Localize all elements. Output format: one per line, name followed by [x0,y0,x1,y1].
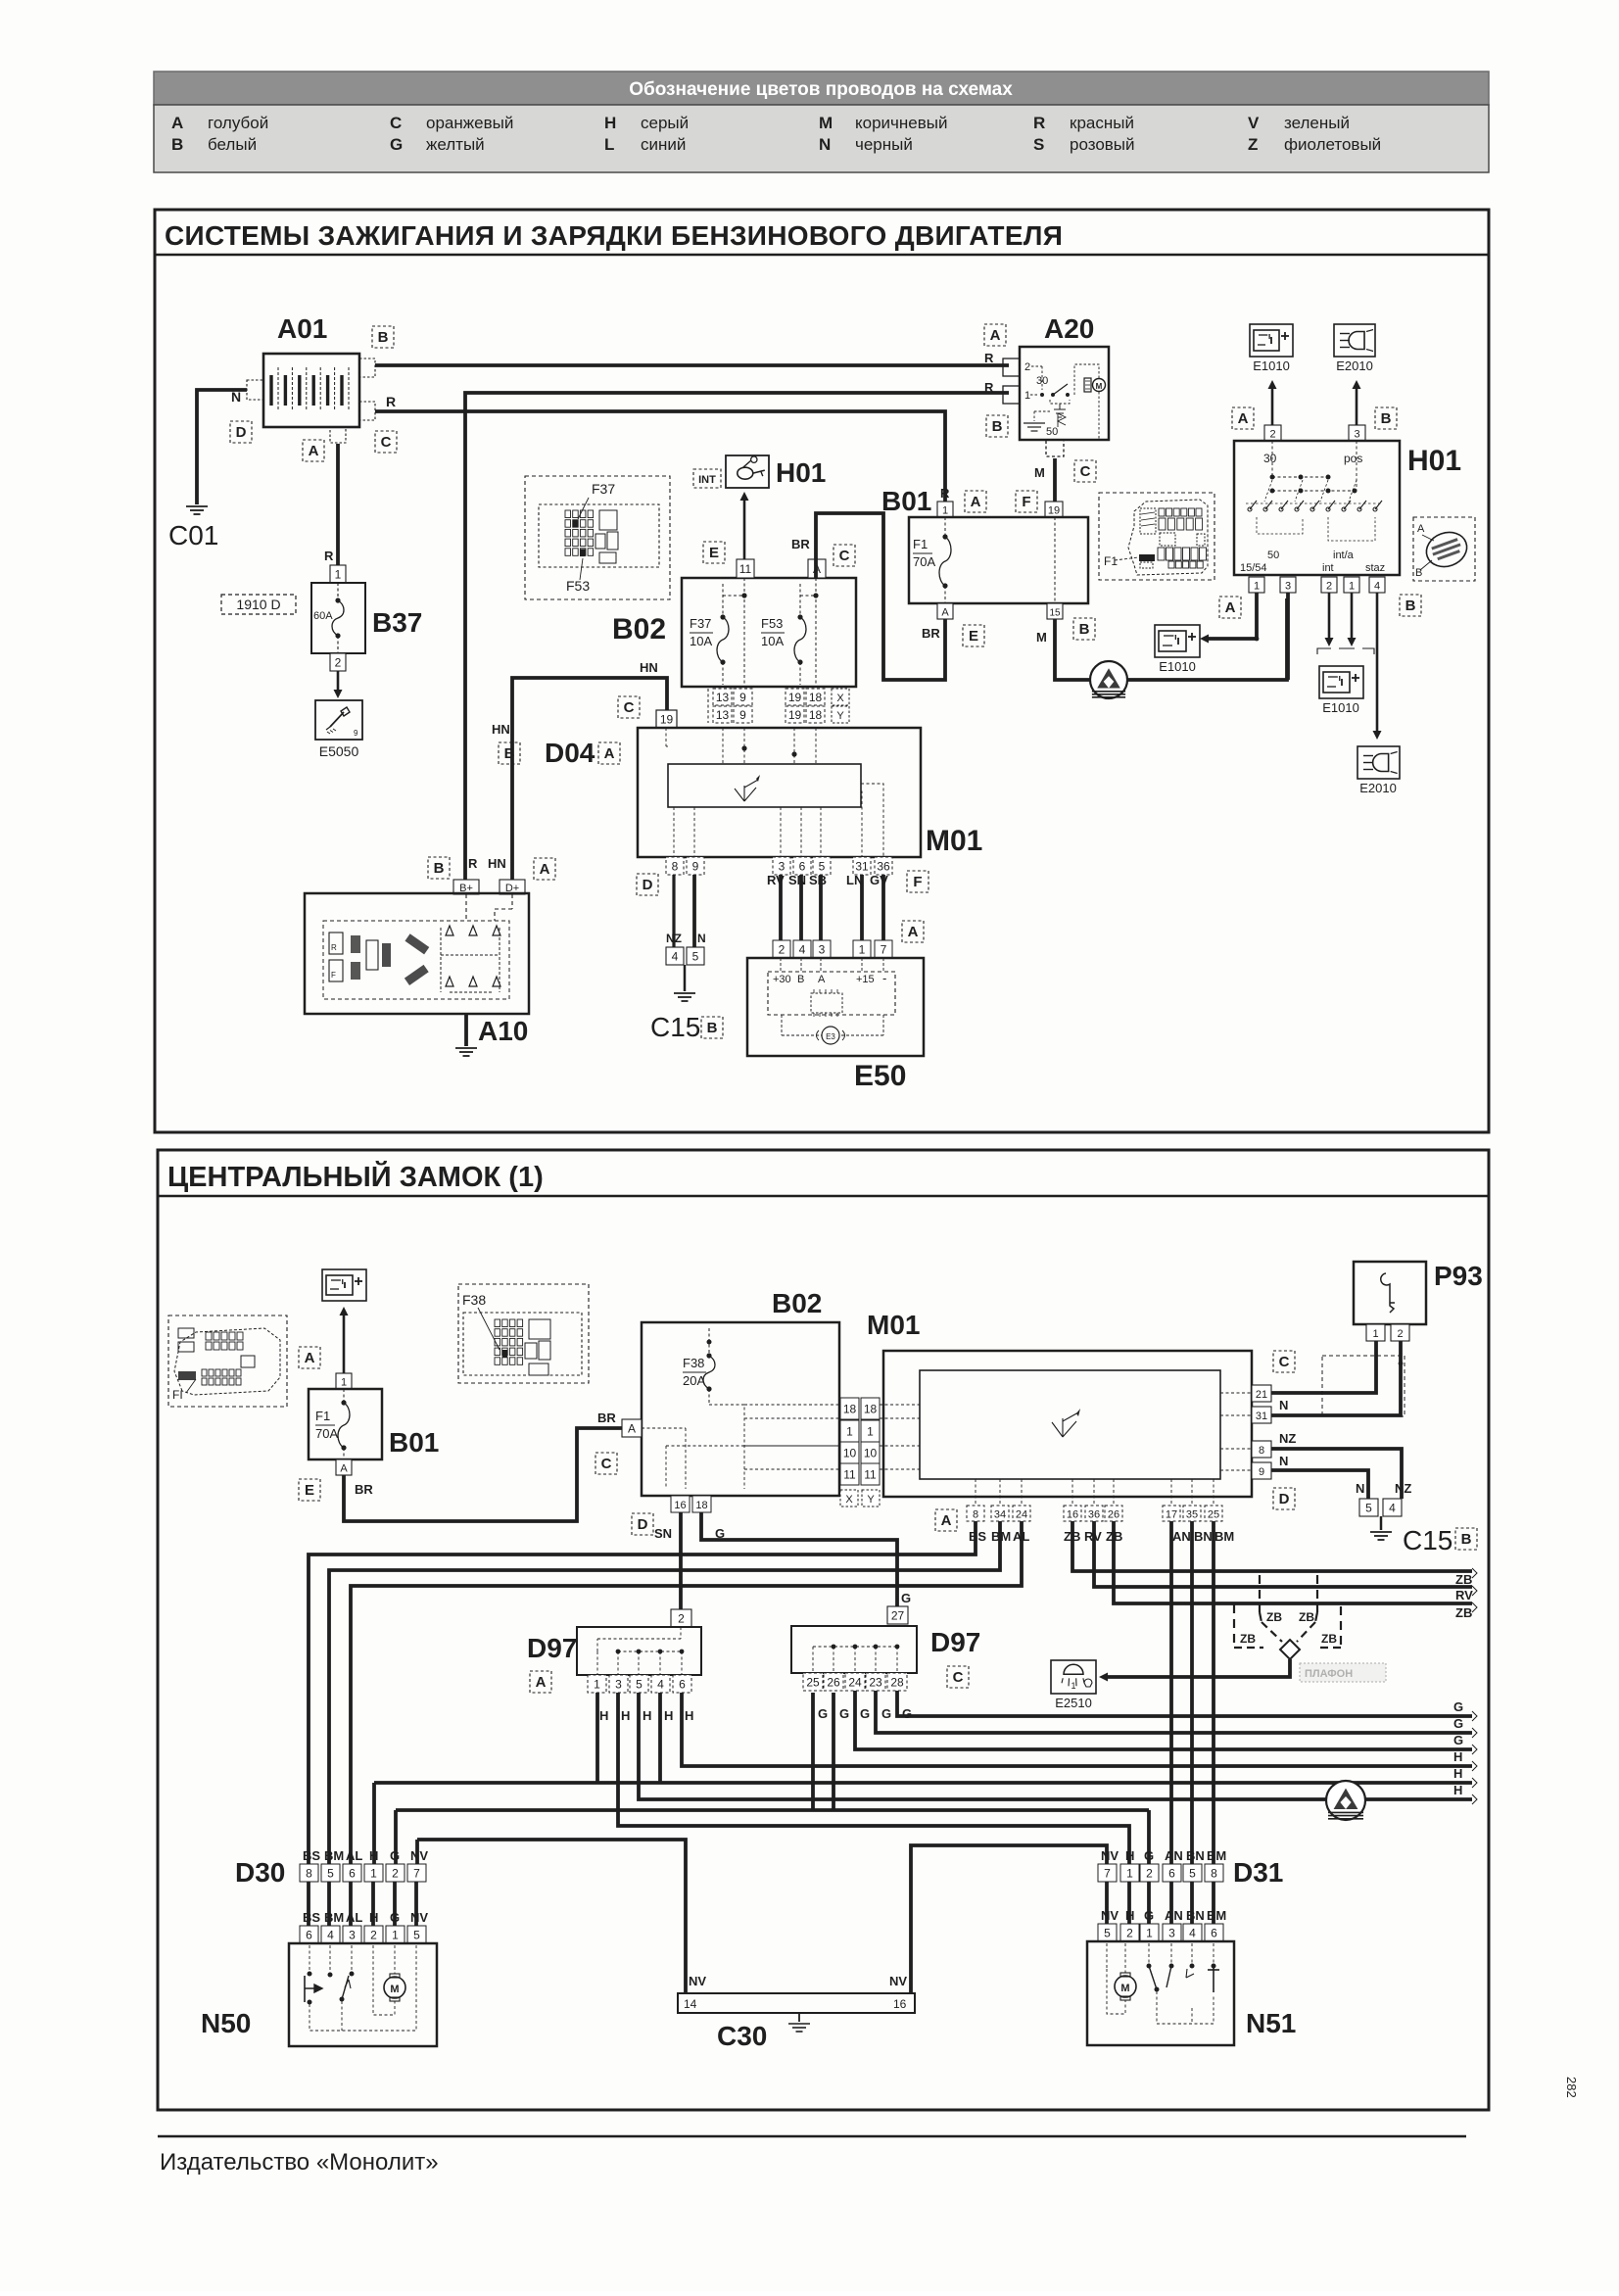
svg-text:C30: C30 [717,2021,767,2051]
svg-text:2: 2 [1269,429,1275,441]
svg-text:G: G [901,1591,911,1605]
svg-text:фиолетовый: фиолетовый [1284,135,1381,154]
svg-text:E5050: E5050 [319,743,359,759]
svg-text:1: 1 [1024,390,1030,402]
svg-text:5: 5 [636,1678,643,1692]
svg-text:4: 4 [1189,1927,1196,1940]
svg-text:BS: BS [303,1848,320,1863]
svg-text:F1: F1 [315,1409,330,1423]
svg-text:2: 2 [1326,581,1332,593]
svg-text:D: D [638,1516,648,1533]
svg-text:D: D [236,424,247,441]
svg-text:23: 23 [869,1676,882,1690]
svg-text:SB: SB [809,873,827,887]
svg-text:M01: M01 [926,825,982,857]
svg-text:B02: B02 [772,1288,822,1318]
svg-text:AN: AN [1172,1529,1191,1544]
svg-text:BR: BR [922,626,940,641]
svg-text:N50: N50 [201,2008,251,2038]
svg-text:BM: BM [1207,1908,1226,1923]
svg-text:BR: BR [355,1482,373,1497]
svg-text:5: 5 [819,860,826,874]
svg-text:8: 8 [1259,1445,1264,1457]
svg-text:G: G [390,1848,400,1863]
svg-text:B: B [504,745,515,762]
svg-text:черный: черный [855,135,913,154]
svg-text:AN: AN [1165,1908,1183,1923]
svg-text:HN: HN [488,856,506,871]
svg-text:B: B [1079,621,1090,638]
svg-text:2: 2 [392,1867,399,1881]
svg-text:18: 18 [695,1500,707,1511]
svg-text:R: R [324,549,334,563]
svg-text:A: A [171,114,183,132]
svg-text:9: 9 [1259,1466,1264,1478]
svg-text:3: 3 [1168,1927,1175,1940]
svg-text:NZ: NZ [1395,1481,1411,1496]
svg-text:4: 4 [1374,581,1380,593]
svg-text:18: 18 [864,1403,878,1416]
svg-text:20A: 20A [683,1373,705,1388]
svg-text:19: 19 [1048,505,1060,517]
svg-text:D97: D97 [930,1627,980,1657]
svg-text:G: G [1453,1699,1463,1714]
svg-text:A: A [1238,410,1249,427]
svg-text:C: C [1080,463,1091,480]
svg-text:M01: M01 [867,1310,920,1340]
svg-text:H: H [1453,1783,1462,1797]
svg-text:D04: D04 [545,738,595,768]
svg-text:C15: C15 [1403,1525,1452,1555]
svg-text:A: A [990,327,1001,344]
svg-text:1: 1 [341,1377,347,1389]
svg-text:SN: SN [654,1526,672,1541]
svg-text:ZB: ZB [1455,1572,1472,1587]
svg-text:NV: NV [410,1910,428,1925]
svg-text:BS: BS [303,1910,320,1925]
svg-text:BN: BN [1194,1529,1213,1544]
svg-text:N: N [1356,1481,1364,1496]
svg-text:1: 1 [594,1678,600,1692]
svg-text:1: 1 [392,1929,399,1942]
svg-text:4: 4 [327,1929,334,1942]
svg-text:-: - [882,971,886,985]
svg-text:R: R [1033,114,1045,132]
svg-text:C: C [953,1669,964,1686]
svg-text:F1: F1 [1104,554,1118,568]
svg-text:S: S [1033,135,1044,154]
svg-text:10A: 10A [690,634,712,648]
svg-text:10A: 10A [761,634,784,648]
svg-text:H: H [369,1910,378,1925]
svg-text:28: 28 [890,1676,904,1690]
svg-text:F38: F38 [683,1356,704,1370]
svg-text:A: A [818,974,826,985]
svg-text:ЦЕНТРАЛЬНЫЙ ЗАМОК (1): ЦЕНТРАЛЬНЫЙ ЗАМОК (1) [167,1160,544,1193]
svg-text:N: N [1279,1398,1288,1412]
svg-text:3: 3 [1285,581,1291,593]
svg-text:F53: F53 [761,616,783,631]
svg-text:C: C [624,699,635,716]
svg-text:NZ: NZ [666,932,682,945]
svg-text:INT: INT [698,474,716,486]
svg-text:G: G [881,1706,891,1721]
svg-text:4: 4 [672,950,679,964]
svg-text:6: 6 [349,1867,356,1881]
svg-text:G: G [1453,1733,1463,1747]
svg-text:E2510: E2510 [1055,1696,1092,1710]
svg-text:H: H [1453,1766,1462,1781]
svg-text:G: G [1144,1848,1154,1863]
svg-text:50: 50 [1046,426,1058,438]
svg-text:белый: белый [208,135,257,154]
svg-text:B37: B37 [372,607,422,638]
svg-text:15: 15 [1049,608,1061,619]
svg-text:серый: серый [641,114,689,132]
svg-text:5: 5 [1189,1867,1196,1881]
svg-text:ПЛАФОН: ПЛАФОН [1305,1668,1353,1680]
svg-text:2: 2 [1146,1867,1153,1881]
svg-text:13: 13 [716,708,730,722]
svg-text:HN: HN [492,722,510,737]
svg-text:10: 10 [864,1447,878,1460]
svg-text:N: N [819,135,831,154]
svg-text:ZB: ZB [1321,1632,1337,1646]
svg-text:H: H [685,1708,693,1723]
svg-text:30: 30 [1263,452,1277,465]
svg-text:M: M [1034,465,1045,480]
svg-text:16: 16 [893,1997,907,2011]
svg-text:27: 27 [891,1609,905,1623]
svg-text:R: R [386,394,396,409]
svg-text:E3: E3 [826,1032,835,1041]
svg-text:3: 3 [1354,429,1359,441]
svg-text:A01: A01 [277,313,327,344]
svg-text:BM: BM [324,1910,344,1925]
svg-text:25: 25 [1208,1509,1219,1521]
svg-text:2: 2 [1397,1328,1403,1340]
svg-text:6: 6 [679,1678,686,1692]
svg-text:B: B [992,418,1003,435]
svg-text:H: H [664,1708,673,1723]
svg-text:18: 18 [809,691,823,704]
svg-text:СИСТЕМЫ ЗАЖИГАНИЯ И ЗАРЯДКИ БЕ: СИСТЕМЫ ЗАЖИГАНИЯ И ЗАРЯДКИ БЕНЗИНОВОГО … [165,220,1063,251]
svg-text:282: 282 [1564,2077,1579,2098]
svg-text:BM: BM [1207,1848,1226,1863]
svg-text:G: G [1453,1716,1463,1731]
svg-text:NV: NV [689,1974,706,1988]
svg-text:E1010: E1010 [1253,359,1290,373]
svg-text:H: H [599,1708,608,1723]
svg-text:красный: красный [1070,114,1134,132]
svg-text:NV: NV [410,1848,428,1863]
svg-text:7: 7 [881,943,887,957]
svg-text:5: 5 [692,950,699,964]
svg-text:B: B [707,1020,718,1036]
svg-text:B: B [378,329,389,346]
svg-text:BR: BR [597,1411,616,1425]
svg-text:6: 6 [1168,1867,1175,1881]
svg-text:R: R [468,856,478,871]
svg-text:AL: AL [346,1910,362,1925]
svg-text:1910 D: 1910 D [236,597,280,612]
svg-text:NV: NV [889,1974,907,1988]
svg-text:1: 1 [867,1425,874,1439]
svg-text:C: C [390,114,402,132]
svg-text:2: 2 [370,1929,377,1942]
svg-text:1: 1 [1349,581,1355,593]
svg-text:34: 34 [994,1509,1006,1521]
svg-text:35: 35 [1186,1509,1198,1521]
svg-text:D: D [643,877,653,893]
svg-text:A: A [628,1422,636,1436]
svg-text:B: B [797,974,804,985]
svg-text:M: M [819,114,833,132]
svg-text:D: D [1279,1491,1290,1507]
svg-text:G: G [390,1910,400,1925]
svg-text:F: F [1022,494,1030,510]
svg-text:D30: D30 [235,1857,285,1888]
svg-text:A: A [604,745,615,762]
svg-text:X: X [845,1494,853,1506]
svg-text:1: 1 [942,505,948,517]
svg-text:9: 9 [739,691,746,704]
svg-text:HN: HN [640,660,658,675]
svg-text:H: H [369,1848,378,1863]
svg-text:1: 1 [1071,1681,1075,1691]
svg-text:2: 2 [335,656,342,670]
svg-text:4: 4 [799,943,806,957]
svg-text:3: 3 [615,1678,622,1692]
svg-text:Y: Y [867,1494,875,1506]
svg-text:16: 16 [674,1500,686,1511]
svg-text:3: 3 [779,860,786,874]
svg-text:A: A [941,1512,952,1529]
svg-text:R: R [940,486,950,501]
svg-text:3: 3 [819,943,826,957]
svg-text:синий: синий [641,135,686,154]
svg-text:19: 19 [788,708,802,722]
svg-text:H01: H01 [1407,445,1461,477]
svg-text:M: M [1036,630,1047,645]
svg-text:9: 9 [739,708,746,722]
svg-text:B: B [171,135,183,154]
svg-text:E2010: E2010 [1336,359,1373,373]
svg-text:Y: Y [836,710,844,722]
svg-text:1: 1 [1254,581,1260,593]
svg-text:2: 2 [678,1612,685,1626]
svg-text:11: 11 [864,1468,877,1482]
svg-text:G: G [1144,1908,1154,1923]
svg-text:M: M [390,1984,399,1995]
svg-text:D97: D97 [527,1633,577,1663]
svg-text:5: 5 [1365,1502,1372,1515]
svg-text:E2010: E2010 [1359,781,1397,795]
svg-text:A: A [971,494,981,510]
svg-text:M: M [1120,1983,1129,1994]
svg-text:R: R [331,943,337,952]
svg-text:9: 9 [354,729,358,738]
svg-text:3: 3 [349,1929,356,1942]
svg-text:21: 21 [1256,1389,1267,1401]
svg-text:N: N [1279,1454,1288,1468]
svg-text:B: B [1405,598,1416,614]
svg-text:B: B [1381,410,1392,427]
svg-text:C01: C01 [168,520,218,550]
svg-text:GV: GV [870,873,888,887]
svg-text:staz: staz [1365,562,1385,574]
svg-text:16: 16 [1067,1509,1078,1521]
svg-text:24: 24 [1016,1509,1027,1521]
svg-text:BR: BR [791,537,810,551]
svg-text:A10: A10 [478,1016,528,1046]
svg-text:AN: AN [1165,1848,1183,1863]
svg-text:BM: BM [324,1848,344,1863]
svg-text:8: 8 [672,860,679,874]
svg-text:1: 1 [859,943,866,957]
svg-text:15/54: 15/54 [1240,562,1267,574]
svg-text:E: E [969,628,978,645]
svg-text:C: C [839,548,850,564]
svg-text:H: H [604,114,616,132]
svg-text:31: 31 [855,860,869,874]
svg-text:E: E [709,545,719,561]
svg-text:R: R [984,351,994,365]
svg-text:6: 6 [306,1929,312,1942]
svg-text:B: B [434,860,445,877]
svg-text:1: 1 [1146,1927,1153,1940]
svg-text:1: 1 [1126,1867,1133,1881]
svg-text:L: L [604,135,614,154]
svg-text:F38: F38 [462,1292,486,1308]
svg-text:H: H [1453,1749,1462,1764]
svg-text:1: 1 [370,1867,377,1881]
svg-text:ZB: ZB [1266,1610,1282,1624]
svg-text:AL: AL [346,1848,362,1863]
svg-text:B01: B01 [389,1427,439,1458]
svg-text:A: A [941,607,949,619]
svg-text:BN: BN [1186,1848,1205,1863]
svg-text:A: A [540,861,550,878]
svg-text:2: 2 [779,943,786,957]
svg-text:B02: B02 [612,613,666,646]
svg-text:E50: E50 [854,1060,906,1092]
svg-text:A: A [340,1463,348,1475]
svg-text:2: 2 [1024,361,1030,373]
svg-text:11: 11 [739,562,752,576]
svg-text:26: 26 [1108,1509,1119,1521]
svg-text:розовый: розовый [1070,135,1135,154]
svg-text:4: 4 [1389,1502,1396,1515]
svg-text:24: 24 [848,1676,862,1690]
svg-text:F53: F53 [566,578,590,594]
svg-text:13: 13 [716,691,730,704]
svg-text:7: 7 [1104,1867,1111,1881]
svg-text:+30: +30 [773,974,791,985]
svg-text:RV: RV [1455,1588,1473,1602]
svg-text:N51: N51 [1246,2008,1296,2038]
svg-text:E1010: E1010 [1322,700,1359,715]
svg-text:H: H [621,1708,630,1723]
svg-text:A: A [1225,599,1236,616]
svg-text:25: 25 [806,1676,820,1690]
svg-text:60A: 60A [313,610,333,622]
svg-text:A: A [1417,523,1425,535]
svg-text:C: C [601,1456,612,1472]
svg-text:F37: F37 [690,616,711,631]
svg-text:C: C [381,434,392,451]
svg-text:G: G [839,1706,849,1721]
svg-text:ZB: ZB [1240,1632,1256,1646]
svg-text:F: F [913,874,922,890]
svg-text:1: 1 [846,1425,853,1439]
svg-text:A: A [908,924,919,940]
svg-text:H: H [1125,1848,1134,1863]
svg-text:A: A [305,1350,315,1366]
svg-text:17: 17 [1166,1509,1177,1521]
svg-text:H: H [643,1708,651,1723]
svg-text:зеленый: зеленый [1284,114,1350,132]
svg-text:11: 11 [843,1468,856,1482]
svg-text:ZB: ZB [1455,1605,1472,1620]
svg-text:P93: P93 [1434,1261,1483,1291]
svg-text:50: 50 [1267,550,1279,561]
svg-text:B01: B01 [881,486,931,516]
svg-text:N: N [697,932,706,945]
svg-text:A: A [536,1674,547,1691]
svg-text:pos: pos [1344,452,1362,465]
svg-text:6: 6 [1211,1927,1217,1940]
svg-text:8: 8 [973,1509,978,1521]
svg-text:G: G [860,1706,870,1721]
svg-text:36: 36 [1088,1509,1100,1521]
svg-text:R: R [984,380,994,395]
svg-text:14: 14 [684,1997,697,2011]
svg-text:FI: FI [172,1388,183,1402]
svg-text:BN: BN [1186,1908,1205,1923]
svg-text:NV: NV [1101,1848,1119,1863]
svg-text:70A: 70A [315,1426,338,1441]
svg-text:голубой: голубой [208,114,268,132]
svg-text:19: 19 [660,713,674,727]
svg-text:5: 5 [413,1929,420,1942]
svg-text:+15: +15 [856,974,875,985]
svg-text:1: 1 [335,568,342,582]
svg-text:18: 18 [809,708,823,722]
svg-text:int: int [1322,562,1334,574]
svg-text:V: V [1248,114,1260,132]
svg-text:4: 4 [657,1678,664,1692]
svg-text:B: B [1461,1531,1472,1548]
svg-text:A20: A20 [1044,313,1094,344]
svg-text:E1010: E1010 [1159,659,1196,674]
svg-text:F1: F1 [913,537,928,551]
svg-text:SN: SN [788,873,806,887]
svg-text:M: M [1096,382,1103,391]
svg-text:26: 26 [827,1676,840,1690]
svg-text:желтый: желтый [426,135,485,154]
svg-text:9: 9 [692,860,699,874]
svg-text:A: A [309,443,319,459]
svg-text:Издательство «Монолит»: Издательство «Монолит» [160,2149,439,2176]
svg-text:70A: 70A [913,554,935,569]
svg-text:G: G [390,135,403,154]
svg-text:E: E [305,1482,314,1499]
svg-text:F37: F37 [592,481,615,497]
svg-text:коричневый: коричневый [855,114,947,132]
svg-text:8: 8 [306,1867,312,1881]
svg-text:19: 19 [788,691,802,704]
